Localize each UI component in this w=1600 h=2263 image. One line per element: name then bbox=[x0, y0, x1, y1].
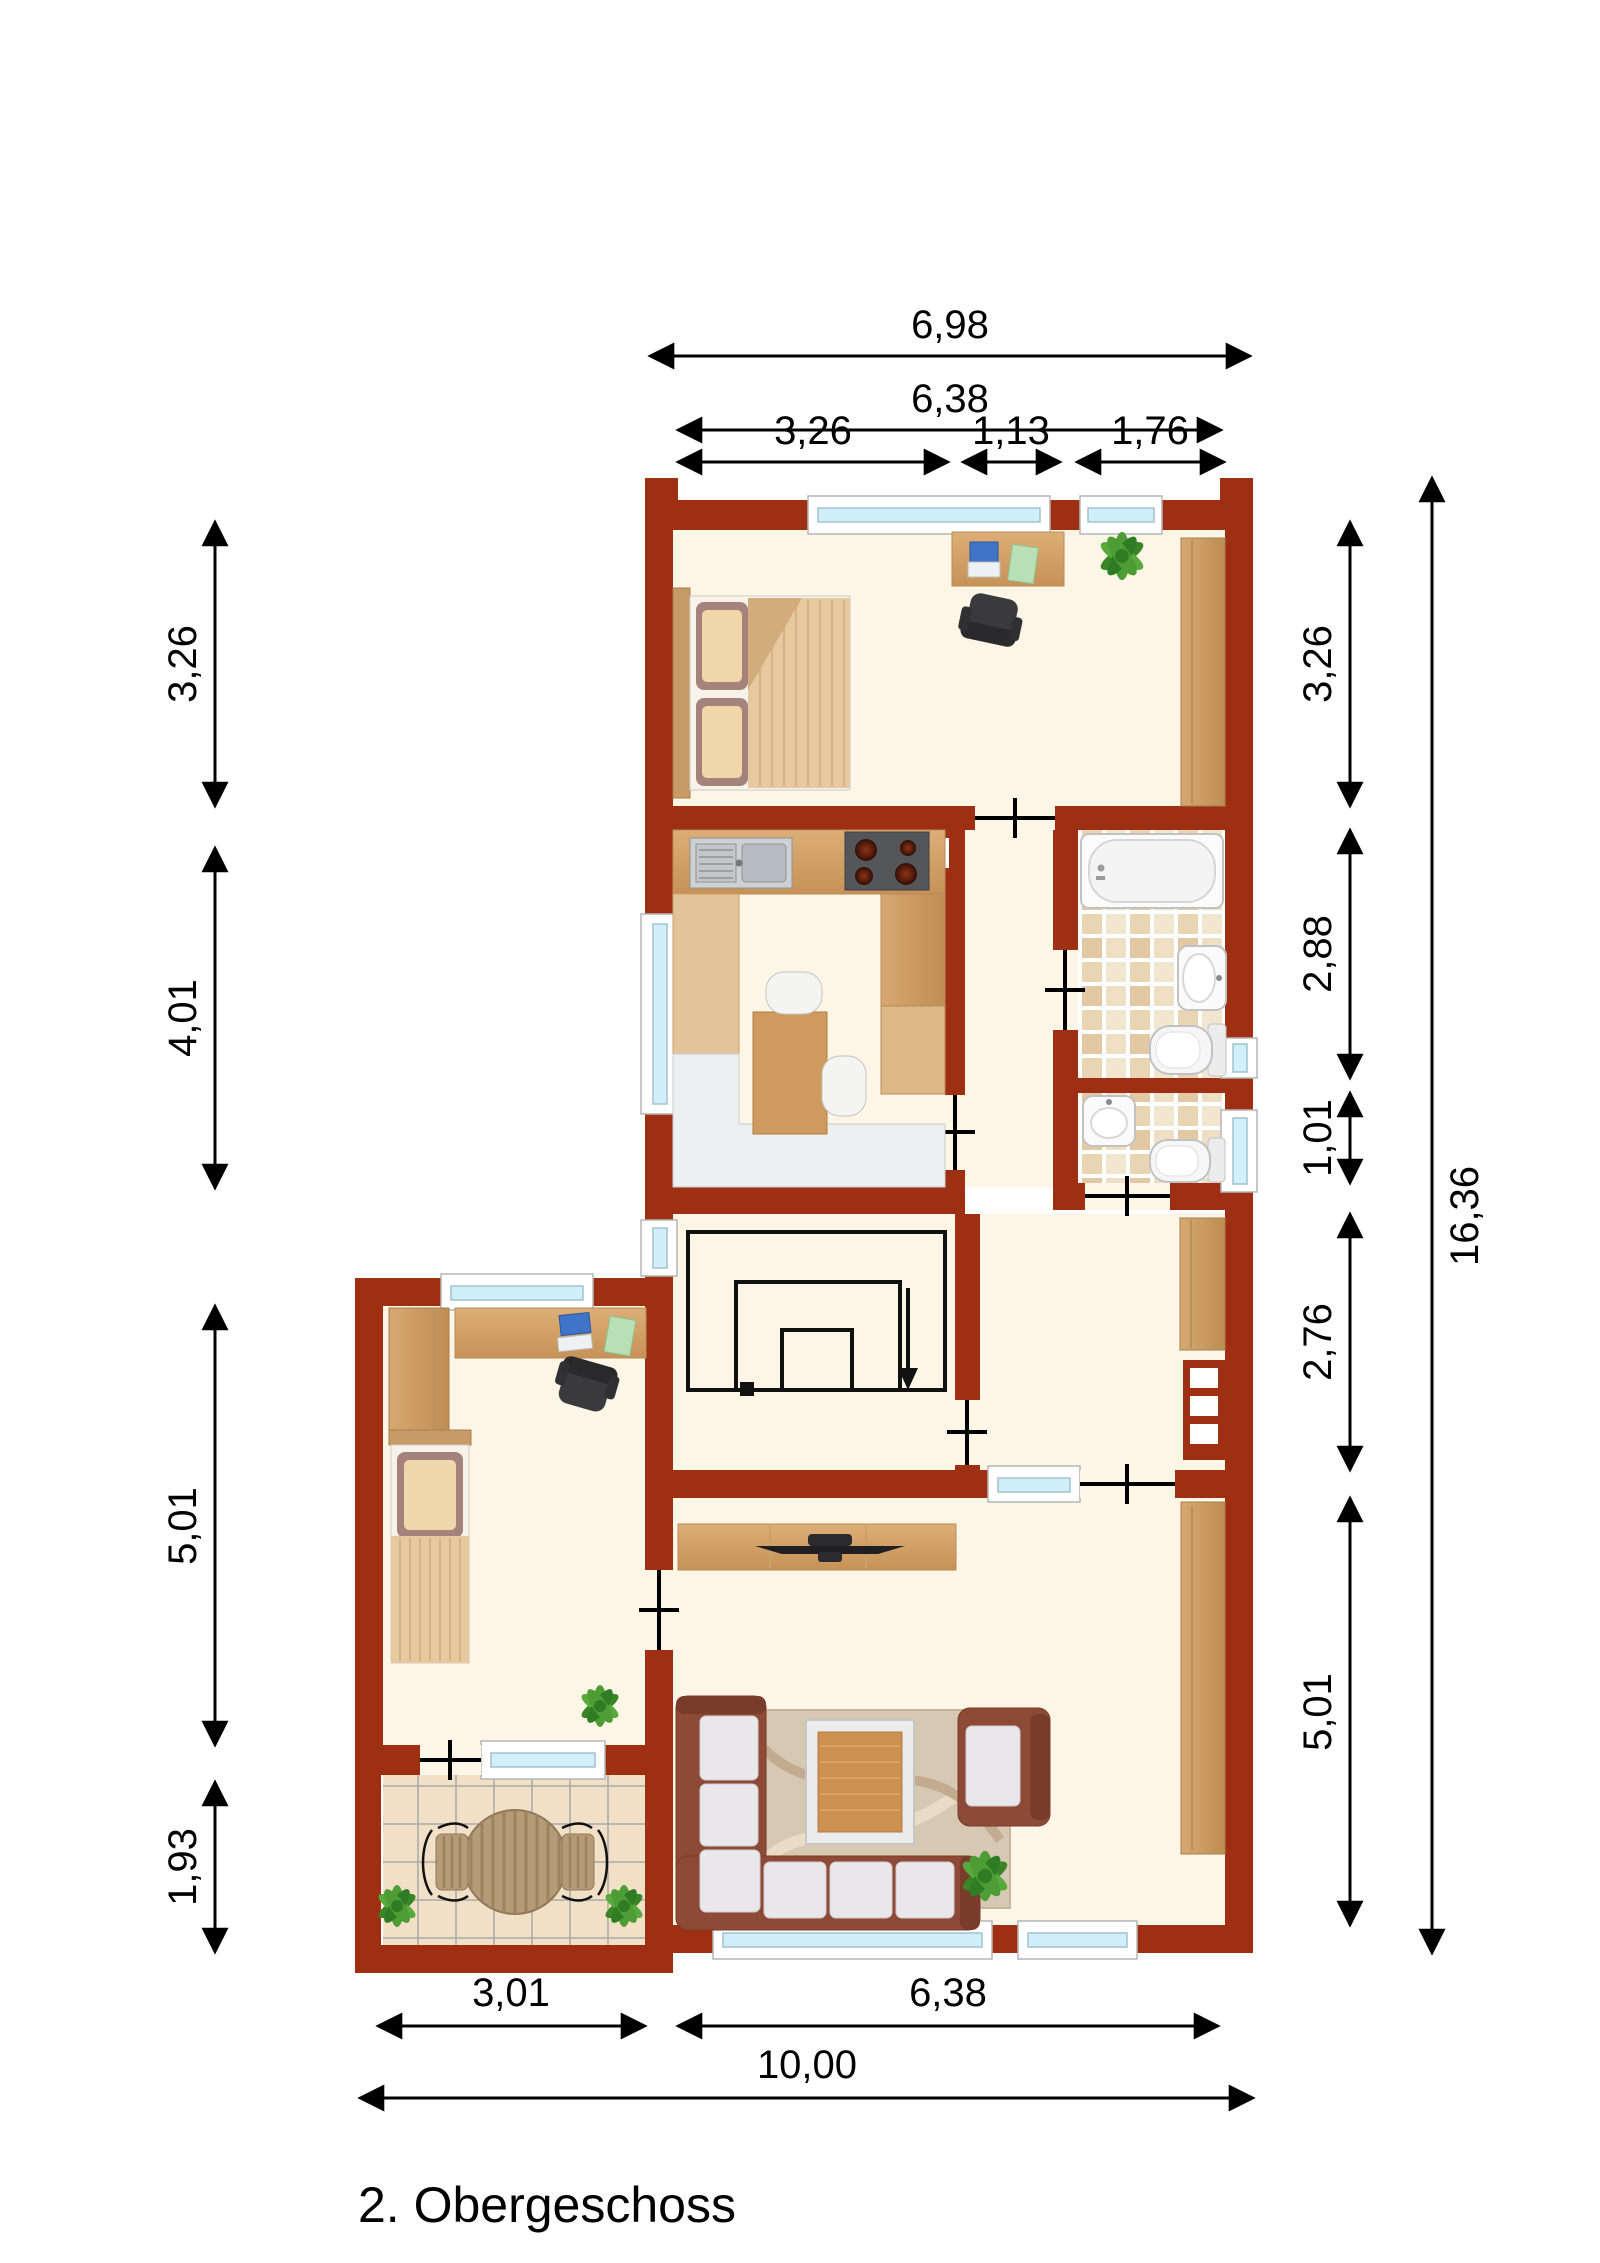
stair-start-marker bbox=[740, 1382, 754, 1396]
window-childroom bbox=[441, 1274, 593, 1310]
dim-left-2: 4,01 bbox=[161, 979, 205, 1057]
laptop bbox=[968, 542, 1000, 577]
dim-right-total: 16,36 bbox=[1443, 1166, 1487, 1266]
kitchen-chair-1 bbox=[766, 972, 822, 1014]
dim-top-seg-1: 3,26 bbox=[774, 409, 852, 453]
child-notepad bbox=[604, 1316, 636, 1356]
bathroom-toilet bbox=[1150, 1024, 1226, 1076]
coffee-table bbox=[806, 1720, 914, 1844]
wall-kitchen-bottom bbox=[645, 1187, 965, 1214]
hall-shelf bbox=[1183, 1360, 1225, 1460]
dim-right-4: 2,76 bbox=[1296, 1303, 1340, 1381]
kitchen-tall-cabinet bbox=[881, 894, 945, 1006]
double-bed-headboard bbox=[673, 588, 690, 798]
dim-left-3: 5,01 bbox=[161, 1487, 205, 1565]
bathroom-sink bbox=[1178, 946, 1226, 1010]
dim-right-3: 1,01 bbox=[1296, 1099, 1340, 1177]
armchair bbox=[958, 1708, 1050, 1826]
kitchen-table bbox=[753, 1012, 827, 1134]
notepad bbox=[1008, 544, 1039, 583]
wc-sink bbox=[1083, 1096, 1135, 1146]
kitchen-sink bbox=[690, 838, 792, 888]
floor-plan: 6,98 6,38 3,26 1,13 1,76 3,26 4,01 5,01 … bbox=[0, 0, 1600, 2263]
dim-top-seg-2: 1,13 bbox=[972, 409, 1050, 453]
dim-left-1: 3,26 bbox=[161, 625, 205, 703]
wc-toilet bbox=[1150, 1138, 1225, 1182]
door-balcony bbox=[420, 1740, 481, 1780]
balcony-table bbox=[463, 1810, 567, 1914]
double-bed bbox=[690, 596, 850, 790]
window-living-small bbox=[1018, 1921, 1137, 1959]
window-hall-living bbox=[988, 1466, 1080, 1502]
dim-top-seg-3: 1,76 bbox=[1111, 409, 1189, 453]
window-bedroom-large bbox=[808, 496, 1050, 534]
dim-bottom-2: 6,38 bbox=[909, 1971, 987, 2015]
window-childroom-balcony bbox=[481, 1741, 605, 1779]
wall-right bbox=[1225, 500, 1253, 1953]
dim-left-4: 1,93 bbox=[161, 1828, 205, 1906]
wall-balcony-left bbox=[355, 1775, 381, 1973]
kitchen-furniture bbox=[673, 830, 945, 1187]
dim-right-2: 2,88 bbox=[1296, 915, 1340, 993]
bedroom-wardrobe bbox=[1181, 538, 1225, 806]
living-wardrobe bbox=[1181, 1502, 1225, 1854]
dim-top-total: 6,98 bbox=[911, 303, 989, 347]
sideboard bbox=[678, 1524, 956, 1570]
bedroom-desk bbox=[952, 532, 1064, 586]
door-childroom bbox=[639, 1570, 679, 1650]
floor-plan-page: 6,98 6,38 3,26 1,13 1,76 3,26 4,01 5,01 … bbox=[0, 0, 1600, 2263]
wall-balcony-bottom bbox=[355, 1945, 673, 1973]
kitchen-stove bbox=[845, 832, 929, 890]
bathtub bbox=[1081, 834, 1223, 908]
door-living bbox=[1080, 1464, 1175, 1504]
dim-right-5: 5,01 bbox=[1296, 1673, 1340, 1751]
wall-bedroom-bottom bbox=[645, 806, 1253, 830]
kitchen-cabinet-low bbox=[881, 1006, 945, 1094]
hall-furniture bbox=[1180, 1218, 1225, 1460]
window-wc bbox=[1221, 1110, 1257, 1192]
single-bed bbox=[389, 1430, 471, 1663]
child-desk bbox=[455, 1308, 646, 1358]
child-wardrobe bbox=[389, 1308, 449, 1436]
wall-childroom-left bbox=[355, 1278, 383, 1775]
dim-bottom-1: 3,01 bbox=[472, 1971, 550, 2015]
wall-bath-wc-divider bbox=[1053, 1078, 1253, 1093]
window-kitchen bbox=[641, 914, 677, 1114]
window-stairwell bbox=[641, 1220, 677, 1276]
wall-stair-right bbox=[955, 1214, 980, 1400]
child-laptop bbox=[557, 1312, 592, 1351]
floor-title: 2. Obergeschoss bbox=[358, 2177, 736, 2233]
kitchen-counter-left bbox=[673, 894, 739, 1054]
window-bedroom-small bbox=[1080, 496, 1162, 534]
dim-right-1: 3,26 bbox=[1296, 625, 1340, 703]
dim-bottom-total: 10,00 bbox=[757, 2043, 857, 2087]
hall-wardrobe bbox=[1180, 1218, 1225, 1350]
kitchen-chair-2 bbox=[822, 1056, 866, 1116]
